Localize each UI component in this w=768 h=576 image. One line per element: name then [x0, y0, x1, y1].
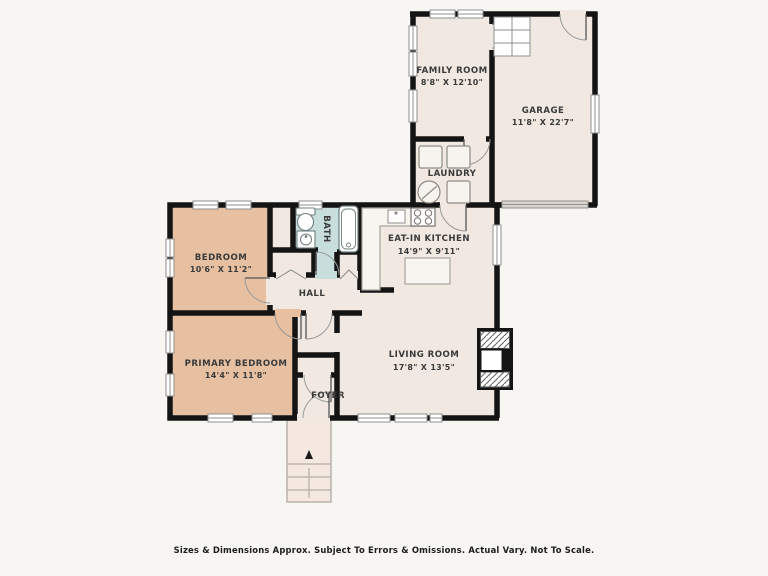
- family-room-dims: 8'8" X 12'10": [421, 78, 483, 87]
- garage-dims: 11'8" X 22'7": [512, 118, 574, 127]
- garage-door: [502, 201, 588, 208]
- kitchen-sink: [388, 210, 405, 223]
- floor-plan-page: FAMILY ROOM 8'8" X 12'10" GARAGE 11'8" X…: [0, 0, 768, 576]
- hall-opening: [333, 333, 341, 352]
- primary-bedroom-dims: 14'4" X 11'8": [205, 371, 267, 380]
- living-room-dims: 17'8" X 13'5": [393, 363, 455, 372]
- linen-closet-door: [340, 270, 358, 279]
- kitchen-label: EAT-IN KITCHEN: [388, 234, 470, 244]
- floor-plan-image: FAMILY ROOM 8'8" X 12'10" GARAGE 11'8" X…: [0, 0, 768, 576]
- toilet: [296, 208, 315, 231]
- stove: [411, 208, 435, 226]
- dryer: [447, 181, 470, 203]
- laundry-label: LAUNDRY: [428, 169, 477, 179]
- living-room-label: LIVING ROOM: [389, 350, 460, 360]
- kitchen-dims: 14'9" X 9'11": [398, 247, 460, 256]
- bath-sink: [297, 231, 315, 248]
- family-room: [413, 14, 492, 139]
- foyer-label: FOYER: [311, 391, 345, 401]
- hall-label: HALL: [299, 289, 326, 299]
- bedroom-label: BEDROOM: [195, 253, 247, 263]
- garage-stairs: [494, 17, 530, 56]
- disclaimer-text: Sizes & Dimensions Approx. Subject To Er…: [174, 545, 595, 555]
- kitchen-island: [405, 258, 450, 284]
- primary-bedroom-label: PRIMARY BEDROOM: [185, 359, 288, 369]
- bathtub: [339, 206, 358, 252]
- closet-bifold-door: [276, 270, 306, 279]
- bath-label: BATH: [321, 215, 331, 242]
- garage-label: GARAGE: [522, 106, 565, 116]
- family-room-label: FAMILY ROOM: [416, 66, 487, 76]
- entry-stoop: [287, 420, 331, 502]
- fireplace: [477, 328, 513, 390]
- appliance: [419, 146, 442, 168]
- bedroom-dims: 10'6" X 11'2": [190, 265, 252, 274]
- appliance: [447, 146, 470, 168]
- washer-icon: [418, 181, 440, 203]
